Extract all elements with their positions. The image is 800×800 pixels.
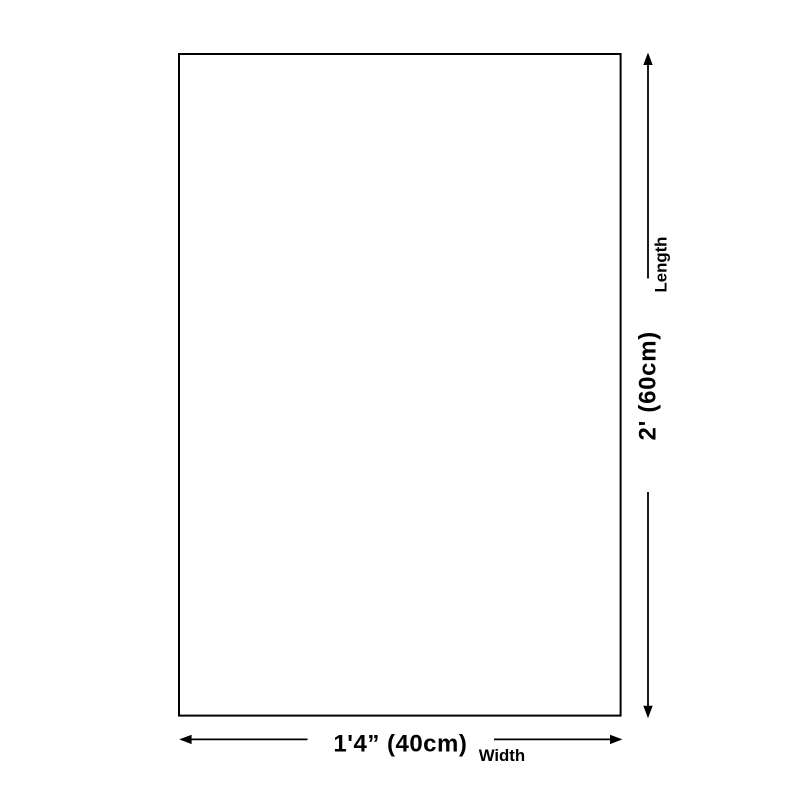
svg-text:Length: Length (652, 237, 671, 293)
svg-text:2' (60cm): 2' (60cm) (635, 331, 662, 440)
svg-text:1'4” (40cm): 1'4” (40cm) (333, 730, 467, 757)
svg-text:Width: Width (479, 746, 525, 765)
